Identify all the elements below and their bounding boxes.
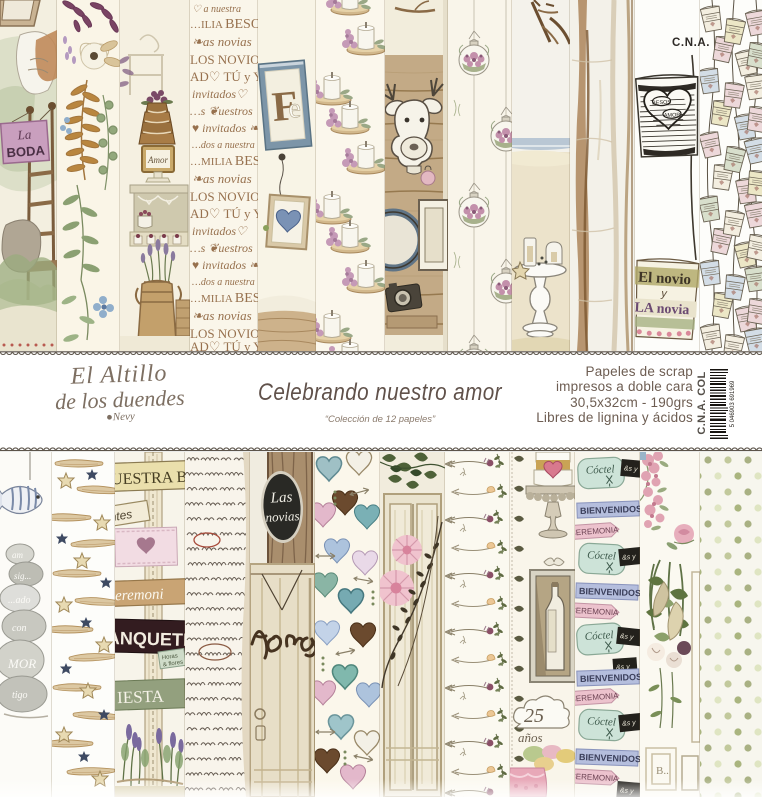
svg-text:años: años — [518, 730, 543, 745]
svg-text:sig...: sig... — [14, 571, 31, 581]
svg-text:…dos a nuestra: …dos a nuestra — [192, 140, 255, 151]
svg-text:Ceremoni: Ceremoni — [115, 587, 164, 605]
svg-text:LA novia: LA novia — [635, 300, 690, 318]
svg-text:AD♡ TÚ y YO: AD♡ TÚ y YO — [190, 69, 258, 84]
svg-text:AD♡ TÚ y YO: AD♡ TÚ y YO — [190, 206, 258, 221]
svg-text:❧as novias: ❧as novias — [192, 308, 252, 323]
svg-text:…s ❦uestros: …s ❦uestros — [190, 241, 253, 255]
svg-text:invitados♡: invitados♡ — [192, 87, 248, 101]
svg-text:Las: Las — [269, 489, 293, 506]
svg-text:LOS NOVIOS: LOS NOVIOS — [190, 52, 258, 67]
svg-text:…MILIA BESOS: …MILIA BESOS — [190, 154, 258, 169]
svg-text:BODA: BODA — [6, 143, 46, 161]
svg-text:♥ invitados ❧: ♥ invitados ❧ — [192, 121, 258, 135]
svg-text:…ILIA BESOS: …ILIA BESOS — [190, 17, 258, 32]
svg-text:ANQUETE: ANQUETE — [115, 628, 185, 650]
svg-text:El novio: El novio — [638, 270, 692, 289]
svg-text:novias: novias — [265, 508, 300, 525]
svg-text:am: am — [12, 550, 24, 560]
svg-text:♡ a nuestra: ♡ a nuestra — [192, 4, 241, 15]
svg-text:con: con — [12, 623, 26, 634]
svg-text:UESTRA B: UESTRA B — [115, 469, 185, 489]
svg-text:AD♡ TÚ y YO: AD♡ TÚ y YO — [190, 339, 258, 351]
svg-text:❧as novias: ❧as novias — [192, 34, 252, 49]
svg-text:Amor: Amor — [147, 155, 168, 165]
svg-text:…dos a nuestra: …dos a nuestra — [192, 277, 255, 288]
svg-text:La: La — [16, 127, 32, 143]
svg-text:…s ❦uestros: …s ❦uestros — [190, 104, 253, 118]
svg-text:5 046903 691969: 5 046903 691969 — [730, 380, 734, 427]
svg-text:B..: B.. — [656, 765, 669, 777]
svg-text:LOS NOVIOS: LOS NOVIOS — [190, 189, 258, 204]
svg-text:tigo: tigo — [12, 690, 28, 701]
svg-text:BESOS: BESOS — [652, 100, 671, 107]
svg-text:...ado: ...ado — [8, 595, 31, 606]
svg-text:❧as novias: ❧as novias — [192, 171, 252, 186]
svg-text:…MILIA BESOS: …MILIA BESOS — [190, 291, 258, 306]
svg-text:MOR: MOR — [7, 656, 36, 671]
svg-text:AMOR: AMOR — [664, 112, 681, 119]
svg-text:invitados♡: invitados♡ — [192, 224, 248, 238]
svg-text:♥ invitados ❧: ♥ invitados ❧ — [192, 258, 258, 272]
svg-text:IESTA: IESTA — [117, 686, 165, 707]
svg-text:25: 25 — [524, 705, 544, 727]
